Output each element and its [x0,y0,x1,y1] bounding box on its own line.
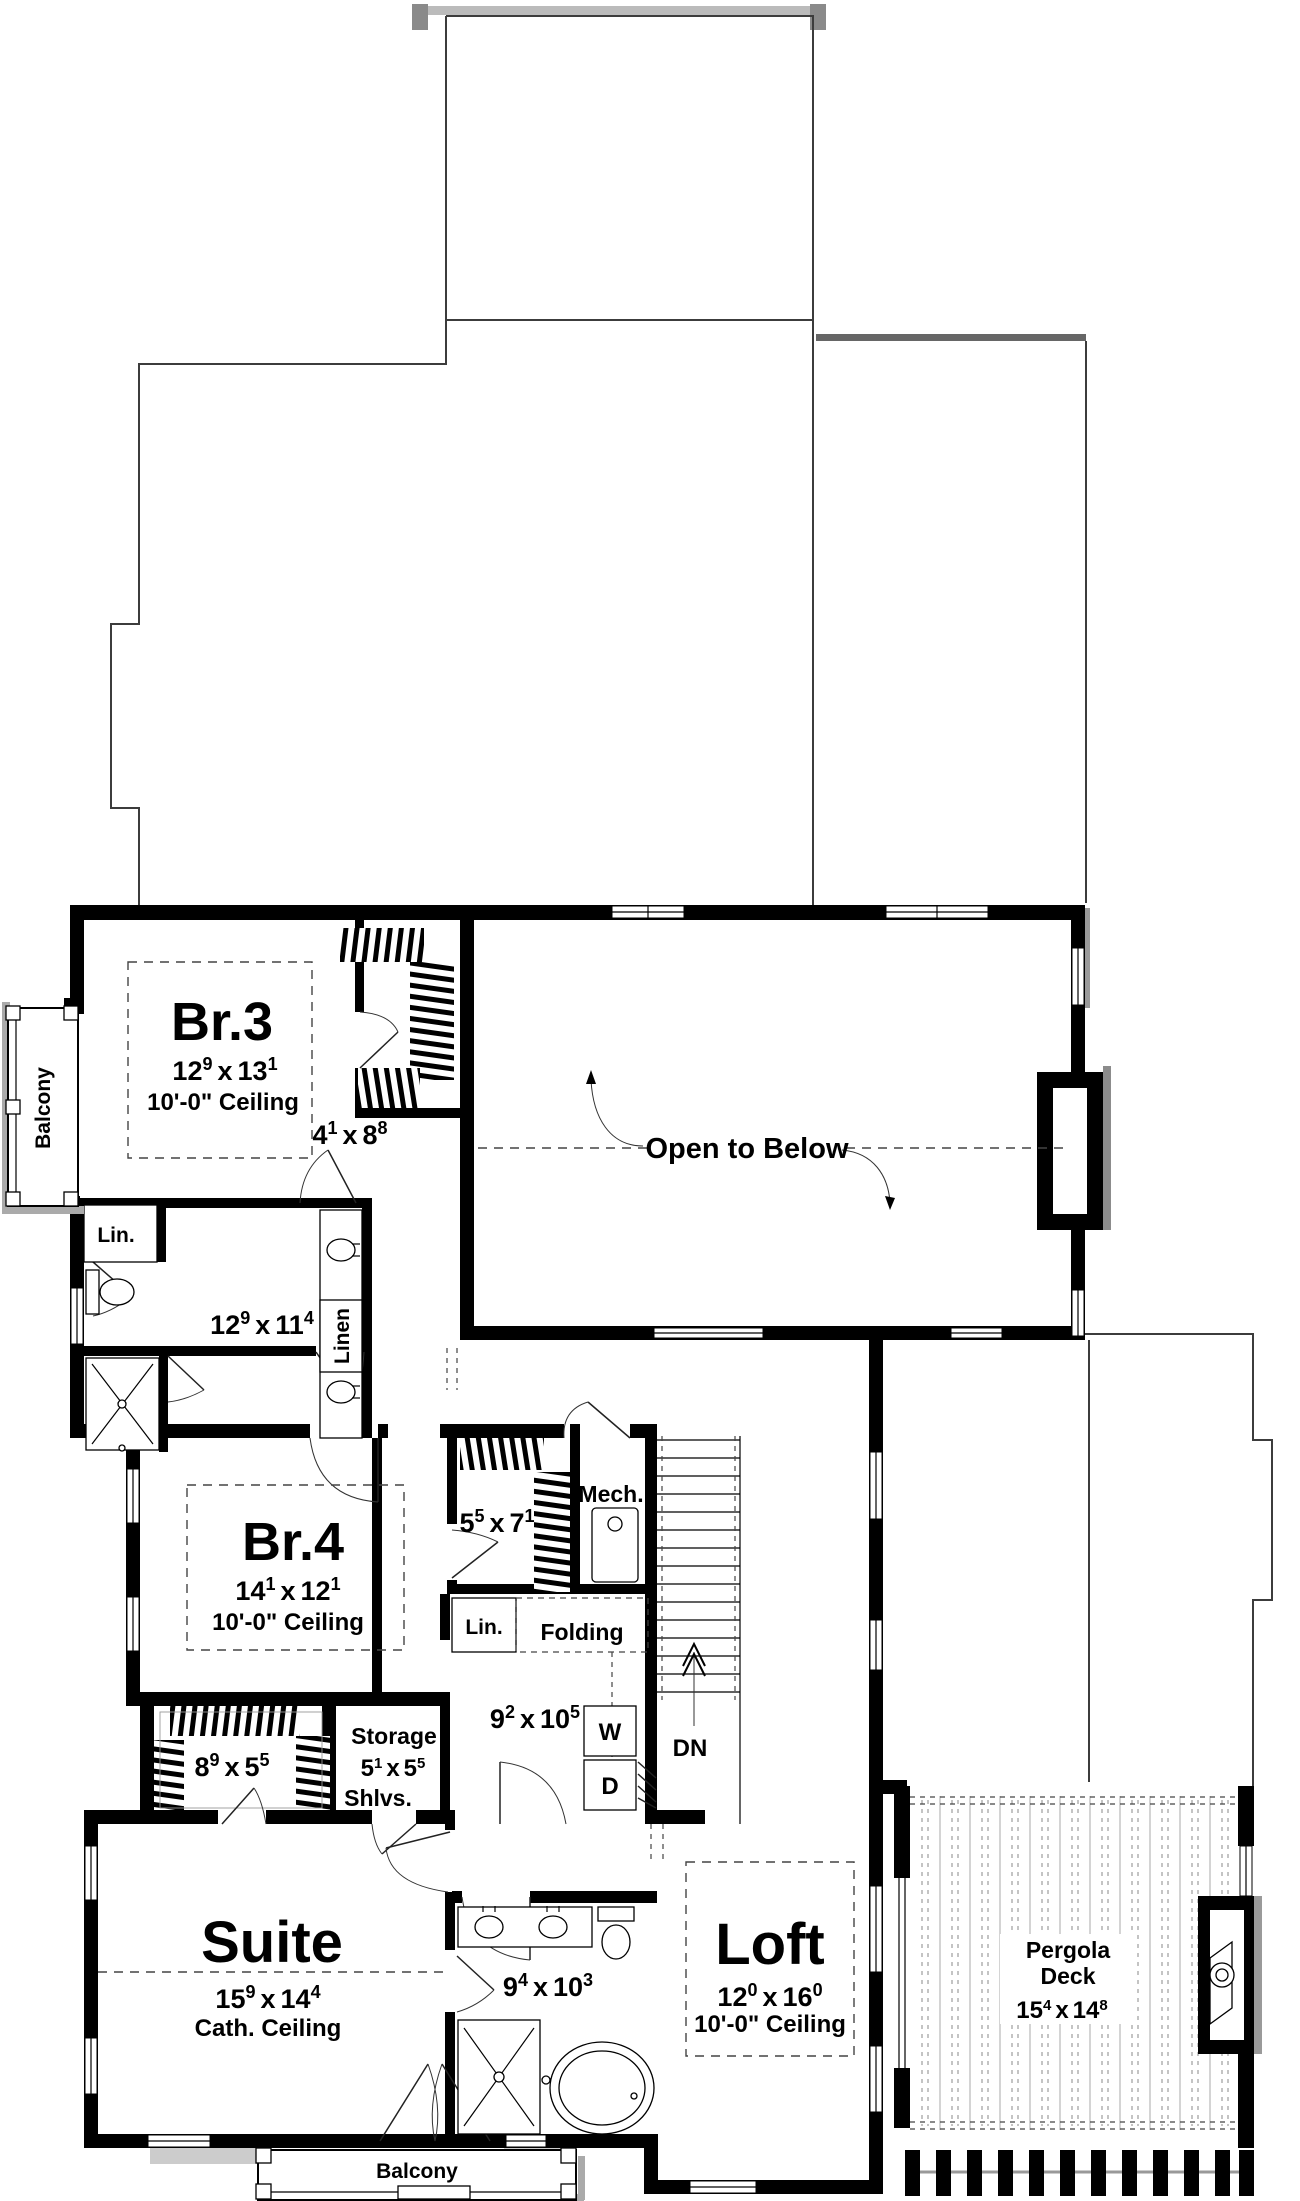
balcony-left: Balcony [2,1002,84,1214]
floor-plan-page: Open to Below DN [0,0,1300,2201]
window-loft-south [690,2181,756,2193]
window-west-br4-1 [127,1469,139,1523]
washer-label: W [599,1719,622,1746]
stairs-down-label: DN [673,1735,708,1762]
loft-ceiling: 10'-0" Ceiling [694,2011,846,2038]
laundry-dims: 92x105 [490,1702,580,1734]
window-north-1 [612,906,684,918]
shelves-label: Shlvs. [344,1785,412,1811]
window-west-suite-2 [85,2038,97,2094]
shower-master [458,2020,550,2134]
window-north-2 [886,906,988,918]
suite-closet-rod-top [170,1706,300,1736]
br3-closet-rod-top [340,928,424,962]
br4-closet-dims: 55x71 [459,1506,534,1538]
loft-dims: 120x160 [717,1980,822,2012]
window-west-suite-1 [85,1846,97,1900]
lin-laundry-label: Lin. [465,1616,502,1639]
br3-closet-rod-bottom [358,1068,420,1108]
open-to-below-label: Open to Below [646,1133,849,1165]
storage-label: Storage [351,1723,437,1749]
window-stairhall-east-1 [870,1452,882,1519]
railing-open-below [654,1328,763,1338]
vanity-master [458,1906,592,1947]
fireplace-chimney [1037,1066,1111,1230]
storage-dims: 51x55 [361,1755,426,1782]
jackjill-dims: 129x114 [210,1308,314,1340]
br4-closet-rod-top [460,1438,544,1470]
balcony-bottom-label: Balcony [376,2160,458,2183]
window-suite-south-2 [506,2135,546,2147]
br3-closet-dims: 41x88 [312,1118,387,1150]
suite-dims: 159x144 [215,1982,320,2014]
window-loft-east-2 [870,2046,882,2112]
linen-label: Linen [331,1308,354,1364]
dryer-label: D [601,1773,618,1800]
br4-name: Br.4 [242,1512,344,1572]
br3-dims: 129x131 [172,1054,277,1086]
loft-name: Loft [715,1912,825,1977]
master-bath-dims: 94x103 [503,1970,593,2002]
suite-closet-rod-right [296,1736,330,1810]
lin-bath-label: Lin. [97,1224,134,1247]
pergola-name-1: Pergola [1026,1937,1111,1963]
br4-ceiling: 10'-0" Ceiling [212,1609,364,1636]
br4-dims: 141x121 [235,1574,340,1606]
suite-name: Suite [201,1910,343,1975]
window-west-br4-2 [127,1597,139,1651]
floor-plan-drawing: Open to Below DN [0,0,1300,2201]
window-loft-east-1 [870,1886,882,1972]
outdoor-fireplace [1198,1896,1262,2054]
shower-jackjill [86,1358,159,1451]
window-east-1 [1072,948,1084,1005]
suite-closet-dims: 89x55 [194,1750,269,1782]
mech-label: Mech. [578,1481,643,1507]
suite-ceiling: Cath. Ceiling [195,2015,342,2042]
balcony-left-label: Balcony [32,1067,55,1149]
br3-name: Br.3 [171,992,273,1052]
folding-label: Folding [540,1619,623,1645]
window-west-bath [71,1288,83,1344]
pergola-dims: 154x148 [1016,1997,1107,2024]
suite-closet-rod-left [154,1740,184,1810]
window-open-below-south [951,1328,1002,1338]
pergola-name-2: Deck [1041,1963,1096,1989]
tub-master [550,2042,654,2134]
window-east-2 [1072,1290,1084,1336]
br3-ceiling: 10'-0" Ceiling [147,1089,299,1116]
window-stairhall-east-2 [870,1620,882,1670]
water-heater [592,1508,638,1582]
br3-closet-rod-side [410,962,454,1080]
br4-closet-rod-side [534,1472,570,1592]
window-suite-south-1 [148,2135,210,2147]
